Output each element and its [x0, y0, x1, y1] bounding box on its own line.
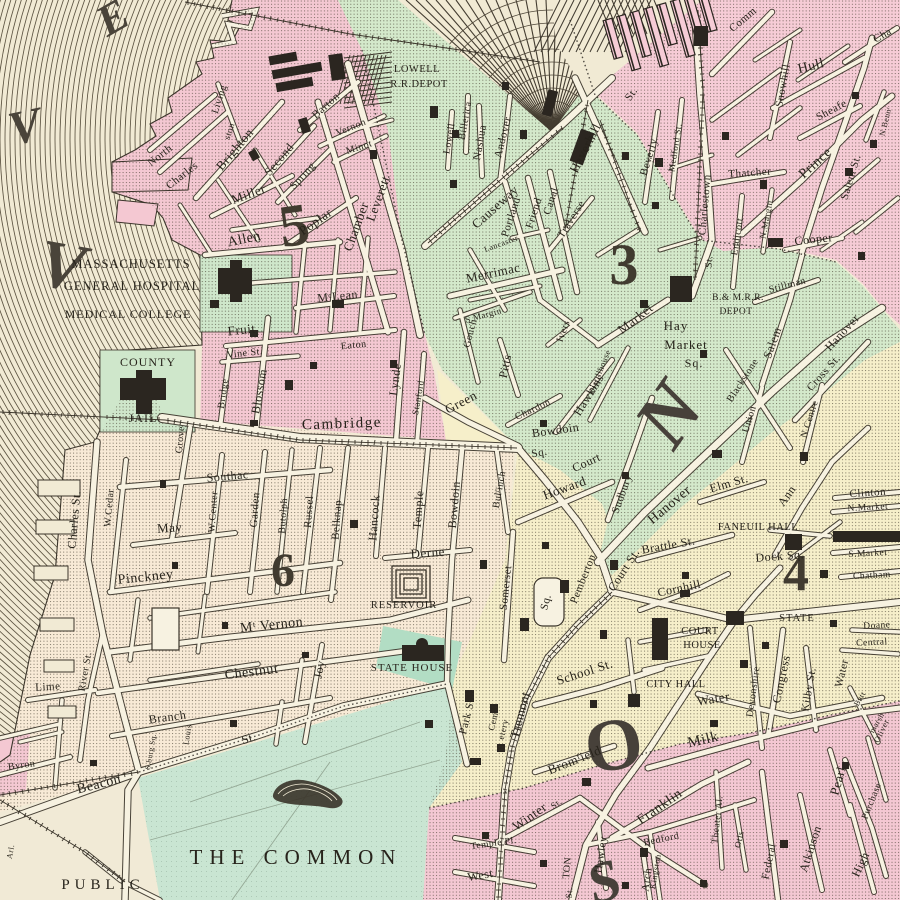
svg-text:May: May	[157, 519, 183, 536]
svg-text:Derne: Derne	[410, 544, 445, 561]
svg-text:THE COMMON: THE COMMON	[190, 845, 403, 869]
svg-text:STATE: STATE	[779, 613, 815, 624]
svg-text:N.Market: N.Market	[847, 502, 888, 514]
svg-text:Central: Central	[856, 637, 888, 649]
svg-text:RESERVOIR: RESERVOIR	[371, 600, 438, 611]
svg-text:Cambridge: Cambridge	[302, 415, 383, 434]
svg-text:DEPOT: DEPOT	[719, 307, 752, 317]
svg-text:LOWELL: LOWELL	[394, 64, 440, 75]
svg-text:CITY HALL: CITY HALL	[646, 679, 705, 690]
svg-text:Doane: Doane	[863, 620, 891, 631]
svg-text:MASSACHUSETTS: MASSACHUSETTS	[71, 257, 190, 271]
svg-text:St.: St.	[703, 255, 715, 268]
svg-text:Russel: Russel	[302, 495, 316, 528]
svg-text:JAIL: JAIL	[129, 411, 158, 425]
svg-text:St.: St.	[564, 887, 575, 899]
svg-text:GENERAL HOSPITAL: GENERAL HOSPITAL	[64, 279, 200, 293]
svg-text:TON: TON	[561, 856, 574, 879]
svg-text:MEDICAL COLLEGE: MEDICAL COLLEGE	[65, 307, 192, 321]
svg-text:3: 3	[610, 232, 639, 297]
svg-text:Fruit: Fruit	[227, 321, 256, 339]
svg-text:FANEUIL HALL: FANEUIL HALL	[718, 522, 798, 533]
svg-text:Garden: Garden	[248, 492, 262, 528]
svg-text:Sq.: Sq.	[685, 356, 704, 370]
svg-text:COUNTY: COUNTY	[120, 355, 176, 369]
svg-text:COURT: COURT	[681, 626, 719, 637]
svg-text:6: 6	[271, 544, 295, 597]
svg-text:Market: Market	[664, 337, 708, 352]
svg-text:B.& M.R.R.: B.& M.R.R.	[712, 293, 764, 303]
svg-text:Chatham: Chatham	[853, 570, 891, 582]
svg-text:HOUSE: HOUSE	[683, 640, 721, 651]
svg-text:Clinton: Clinton	[849, 486, 886, 501]
svg-text:Hay: Hay	[664, 318, 689, 333]
svg-text:PUBLIC: PUBLIC	[61, 877, 144, 893]
svg-text:Lime: Lime	[35, 680, 61, 693]
svg-text:S.Market: S.Market	[848, 548, 888, 560]
svg-text:R.R.DEPOT: R.R.DEPOT	[390, 79, 448, 90]
svg-text:STATE HOUSE: STATE HOUSE	[371, 662, 454, 674]
svg-text:Temple: Temple	[410, 490, 427, 530]
